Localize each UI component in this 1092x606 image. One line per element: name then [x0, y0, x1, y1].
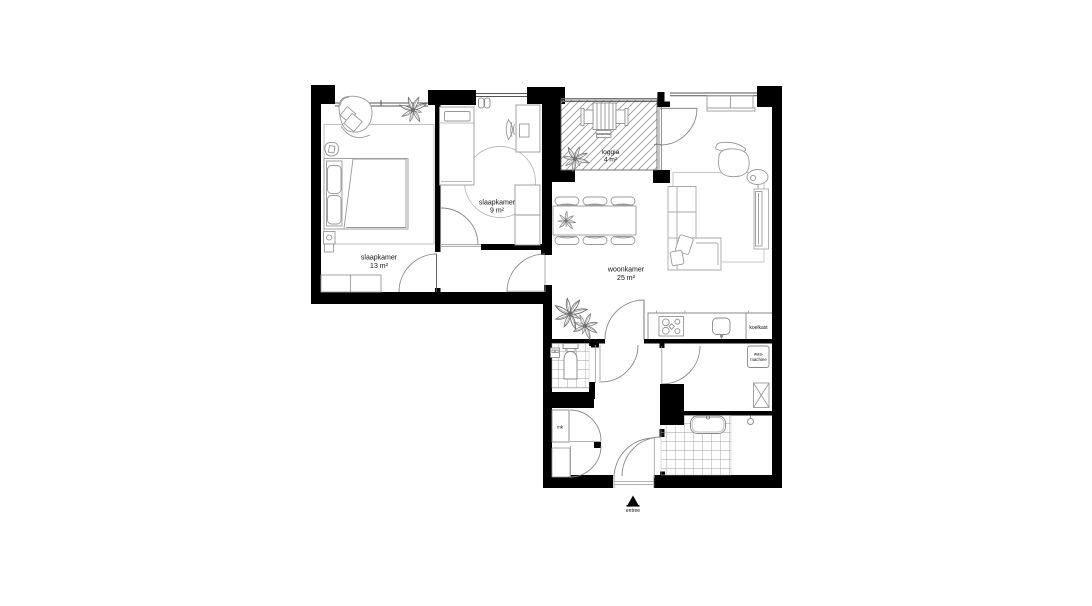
svg-text:13 m²: 13 m²: [370, 263, 389, 270]
svg-text:loggia: loggia: [602, 149, 620, 156]
svg-text:slaapkamer: slaapkamer: [361, 255, 398, 262]
svg-text:woonkamer: woonkamer: [607, 267, 645, 274]
svg-text:4 m²: 4 m²: [604, 156, 618, 163]
svg-text:mk: mk: [557, 425, 564, 430]
svg-text:slaapkamer: slaapkamer: [479, 200, 516, 207]
svg-text:entree: entree: [626, 508, 640, 514]
svg-text:machine: machine: [750, 357, 767, 362]
svg-text:25 m²: 25 m²: [617, 275, 636, 282]
svg-text:9 m²: 9 m²: [490, 208, 505, 215]
svg-text:was-: was-: [754, 352, 764, 357]
svg-text:koelkast: koelkast: [749, 325, 768, 331]
